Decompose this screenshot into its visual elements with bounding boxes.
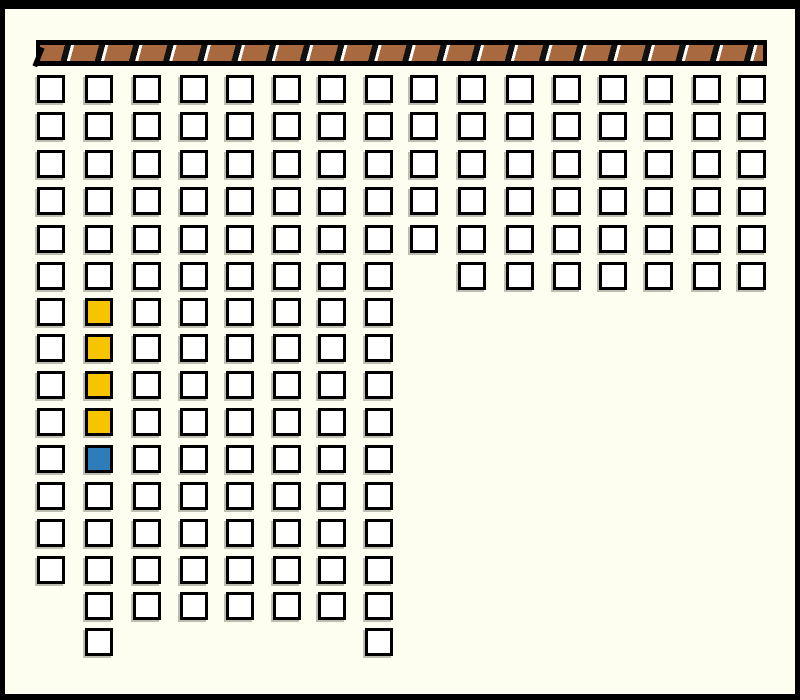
grid-cell-c6-r15[interactable] [273, 592, 301, 620]
grid-cell-c16-r5[interactable] [738, 225, 766, 253]
grid-cell-c10-r3[interactable] [458, 150, 486, 178]
grid-cell-c13-r6[interactable] [599, 262, 627, 290]
grid-cell-c3-r14[interactable] [133, 556, 161, 584]
grid-cell-c3-r1[interactable] [133, 75, 161, 103]
grid-cell-c5-r10[interactable] [226, 408, 254, 436]
grid-cell-c4-r10[interactable] [180, 408, 208, 436]
grid-cell-c8-r14[interactable] [365, 556, 393, 584]
grid-cell-c12-r5[interactable] [553, 225, 581, 253]
grid-cell-c2-r4[interactable] [85, 187, 113, 215]
grid-cell-c7-r5[interactable] [318, 225, 346, 253]
grid-cell-c1-r2[interactable] [37, 112, 65, 140]
grid-cell-c3-r10[interactable] [133, 408, 161, 436]
grid-cell-c3-r12[interactable] [133, 482, 161, 510]
grid-cell-c12-r6[interactable] [553, 262, 581, 290]
grid-cell-c8-r6[interactable] [365, 262, 393, 290]
grid-cell-c16-r4[interactable] [738, 187, 766, 215]
grid-cell-c5-r3[interactable] [226, 150, 254, 178]
grid-cell-c4-r14[interactable] [180, 556, 208, 584]
grid-cell-c11-r6[interactable] [506, 262, 534, 290]
grid-cell-c2-r5[interactable] [85, 225, 113, 253]
grid-cell-c5-r5[interactable] [226, 225, 254, 253]
grid-cell-c6-r2[interactable] [273, 112, 301, 140]
grid-cell-c13-r5[interactable] [599, 225, 627, 253]
grid-cell-c5-r15[interactable] [226, 592, 254, 620]
grid-cell-c15-r4[interactable] [693, 187, 721, 215]
grid-cell-c8-r5[interactable] [365, 225, 393, 253]
grid-cell-c4-r2[interactable] [180, 112, 208, 140]
grid-cell-c8-r9[interactable] [365, 371, 393, 399]
grid-cell-c16-r2[interactable] [738, 112, 766, 140]
grid-cell-c6-r3[interactable] [273, 150, 301, 178]
grid-cell-c7-r2[interactable] [318, 112, 346, 140]
grid-cell-c1-r5[interactable] [37, 225, 65, 253]
grid-cell-c4-r9[interactable] [180, 371, 208, 399]
grid-cell-c2-r11-blue[interactable] [85, 445, 113, 473]
grid-cell-c10-r6[interactable] [458, 262, 486, 290]
grid-cell-c2-r3[interactable] [85, 150, 113, 178]
grid-cell-c5-r6[interactable] [226, 262, 254, 290]
grid-cell-c11-r4[interactable] [506, 187, 534, 215]
grid-cell-c2-r10-yellow[interactable] [85, 408, 113, 436]
grid-cell-c7-r10[interactable] [318, 408, 346, 436]
grid-cell-c15-r5[interactable] [693, 225, 721, 253]
grid-cell-c2-r7-yellow[interactable] [85, 298, 113, 326]
grid-cell-c3-r6[interactable] [133, 262, 161, 290]
grid-cell-c5-r4[interactable] [226, 187, 254, 215]
grid-cell-c4-r1[interactable] [180, 75, 208, 103]
grid-cell-c2-r2[interactable] [85, 112, 113, 140]
grid-cell-c4-r3[interactable] [180, 150, 208, 178]
grid-cell-c3-r11[interactable] [133, 445, 161, 473]
grid-cell-c5-r14[interactable] [226, 556, 254, 584]
grid-cell-c1-r12[interactable] [37, 482, 65, 510]
grid-cell-c4-r11[interactable] [180, 445, 208, 473]
grid-cell-c5-r2[interactable] [226, 112, 254, 140]
grid-cell-c1-r4[interactable] [37, 187, 65, 215]
grid-cell-c1-r7[interactable] [37, 298, 65, 326]
grid-cell-c13-r1[interactable] [599, 75, 627, 103]
grid-cell-c11-r1[interactable] [506, 75, 534, 103]
grid-cell-c4-r7[interactable] [180, 298, 208, 326]
grid-cell-c2-r13[interactable] [85, 519, 113, 547]
grid-cell-c11-r5[interactable] [506, 225, 534, 253]
grid-cell-c15-r3[interactable] [693, 150, 721, 178]
grid-cell-c7-r12[interactable] [318, 482, 346, 510]
grid-cell-c6-r13[interactable] [273, 519, 301, 547]
grid-cell-c8-r10[interactable] [365, 408, 393, 436]
grid-cell-c3-r2[interactable] [133, 112, 161, 140]
grid-cell-c14-r6[interactable] [645, 262, 673, 290]
grid-cell-c7-r7[interactable] [318, 298, 346, 326]
grid-cell-c4-r12[interactable] [180, 482, 208, 510]
grid-cell-c10-r5[interactable] [458, 225, 486, 253]
grid-cell-c10-r2[interactable] [458, 112, 486, 140]
grid-cell-c6-r7[interactable] [273, 298, 301, 326]
app-window [0, 0, 800, 700]
grid-cell-c9-r3[interactable] [410, 150, 438, 178]
grid-cell-c6-r4[interactable] [273, 187, 301, 215]
grid-cell-c3-r8[interactable] [133, 334, 161, 362]
grid-cell-c9-r5[interactable] [410, 225, 438, 253]
grid-cell-c1-r8[interactable] [37, 334, 65, 362]
grid-cell-c2-r6[interactable] [85, 262, 113, 290]
grid-cell-c6-r14[interactable] [273, 556, 301, 584]
grid-cell-c8-r2[interactable] [365, 112, 393, 140]
grid-cell-c16-r6[interactable] [738, 262, 766, 290]
grid-cell-c8-r7[interactable] [365, 298, 393, 326]
grid-cell-c2-r15[interactable] [85, 592, 113, 620]
grid-cell-c6-r12[interactable] [273, 482, 301, 510]
grid-cell-c2-r8-yellow[interactable] [85, 334, 113, 362]
hatched-divider-bar [36, 40, 767, 66]
grid-cell-c4-r5[interactable] [180, 225, 208, 253]
grid-cell-c13-r4[interactable] [599, 187, 627, 215]
grid-cell-c10-r1[interactable] [458, 75, 486, 103]
grid-cell-c6-r9[interactable] [273, 371, 301, 399]
grid-cell-c11-r2[interactable] [506, 112, 534, 140]
grid-cell-c16-r1[interactable] [738, 75, 766, 103]
grid-cell-c1-r13[interactable] [37, 519, 65, 547]
grid-cell-c13-r3[interactable] [599, 150, 627, 178]
grid-cell-c8-r8[interactable] [365, 334, 393, 362]
grid-cell-c6-r11[interactable] [273, 445, 301, 473]
grid-cell-c7-r13[interactable] [318, 519, 346, 547]
grid-cell-c3-r4[interactable] [133, 187, 161, 215]
grid-cell-c9-r1[interactable] [410, 75, 438, 103]
grid-cell-c4-r15[interactable] [180, 592, 208, 620]
grid-cell-c8-r4[interactable] [365, 187, 393, 215]
grid-cell-c14-r4[interactable] [645, 187, 673, 215]
grid-cell-c1-r14[interactable] [37, 556, 65, 584]
bar-left-tip [32, 47, 44, 67]
grid-cell-c7-r6[interactable] [318, 262, 346, 290]
grid-cell-c4-r6[interactable] [180, 262, 208, 290]
grid-cell-c6-r8[interactable] [273, 334, 301, 362]
grid-cell-c3-r9[interactable] [133, 371, 161, 399]
grid-cell-c2-r12[interactable] [85, 482, 113, 510]
grid-cell-c8-r1[interactable] [365, 75, 393, 103]
grid-cell-c15-r1[interactable] [693, 75, 721, 103]
grid-cell-c3-r15[interactable] [133, 592, 161, 620]
grid-cell-c15-r2[interactable] [693, 112, 721, 140]
grid-cell-c5-r1[interactable] [226, 75, 254, 103]
grid-cell-c13-r2[interactable] [599, 112, 627, 140]
grid-cell-c9-r2[interactable] [410, 112, 438, 140]
grid-cell-c3-r3[interactable] [133, 150, 161, 178]
grid-cell-c7-r14[interactable] [318, 556, 346, 584]
grid-cell-c8-r12[interactable] [365, 482, 393, 510]
grid-cell-c12-r2[interactable] [553, 112, 581, 140]
grid-cell-c7-r9[interactable] [318, 371, 346, 399]
grid-cell-c5-r8[interactable] [226, 334, 254, 362]
grid-cell-c4-r8[interactable] [180, 334, 208, 362]
grid-cell-c10-r4[interactable] [458, 187, 486, 215]
grid-cell-c9-r4[interactable] [410, 187, 438, 215]
grid-cell-c7-r15[interactable] [318, 592, 346, 620]
grid-cell-c1-r1[interactable] [37, 75, 65, 103]
grid-cell-c1-r6[interactable] [37, 262, 65, 290]
grid-cell-c2-r9-yellow[interactable] [85, 371, 113, 399]
grid-cell-c5-r11[interactable] [226, 445, 254, 473]
grid-cell-c8-r15[interactable] [365, 592, 393, 620]
grid-cell-c5-r13[interactable] [226, 519, 254, 547]
grid-cell-c8-r13[interactable] [365, 519, 393, 547]
grid-cell-c7-r8[interactable] [318, 334, 346, 362]
grid-cell-c3-r5[interactable] [133, 225, 161, 253]
grid-cell-c8-r16[interactable] [365, 628, 393, 656]
grid-cell-c1-r3[interactable] [37, 150, 65, 178]
grid-cell-c6-r5[interactable] [273, 225, 301, 253]
grid-cell-c7-r4[interactable] [318, 187, 346, 215]
grid-cell-c2-r1[interactable] [85, 75, 113, 103]
grid-cell-c7-r3[interactable] [318, 150, 346, 178]
grid-cell-c6-r1[interactable] [273, 75, 301, 103]
grid-cell-c3-r13[interactable] [133, 519, 161, 547]
grid-cell-c12-r3[interactable] [553, 150, 581, 178]
grid-cell-c2-r16[interactable] [85, 628, 113, 656]
grid-cell-c5-r7[interactable] [226, 298, 254, 326]
grid-cell-c8-r3[interactable] [365, 150, 393, 178]
grid-cell-c3-r7[interactable] [133, 298, 161, 326]
grid-cell-c11-r3[interactable] [506, 150, 534, 178]
grid-cell-c1-r9[interactable] [37, 371, 65, 399]
grid-cell-c12-r4[interactable] [553, 187, 581, 215]
grid-cell-c6-r10[interactable] [273, 408, 301, 436]
grid-cell-c14-r3[interactable] [645, 150, 673, 178]
grid-cell-c14-r5[interactable] [645, 225, 673, 253]
grid-cell-c5-r12[interactable] [226, 482, 254, 510]
grid-cell-c7-r11[interactable] [318, 445, 346, 473]
grid-cell-c2-r14[interactable] [85, 556, 113, 584]
grid-cell-c7-r1[interactable] [318, 75, 346, 103]
grid-cell-c4-r13[interactable] [180, 519, 208, 547]
grid-cell-c12-r1[interactable] [553, 75, 581, 103]
grid-cell-c5-r9[interactable] [226, 371, 254, 399]
grid-cell-c4-r4[interactable] [180, 187, 208, 215]
grid-cell-c8-r11[interactable] [365, 445, 393, 473]
grid-cell-c6-r6[interactable] [273, 262, 301, 290]
grid-cell-c14-r1[interactable] [645, 75, 673, 103]
grid-cell-c16-r3[interactable] [738, 150, 766, 178]
grid-cell-c1-r11[interactable] [37, 445, 65, 473]
grid-cell-c14-r2[interactable] [645, 112, 673, 140]
grid-cell-c15-r6[interactable] [693, 262, 721, 290]
grid-cell-c1-r10[interactable] [37, 408, 65, 436]
